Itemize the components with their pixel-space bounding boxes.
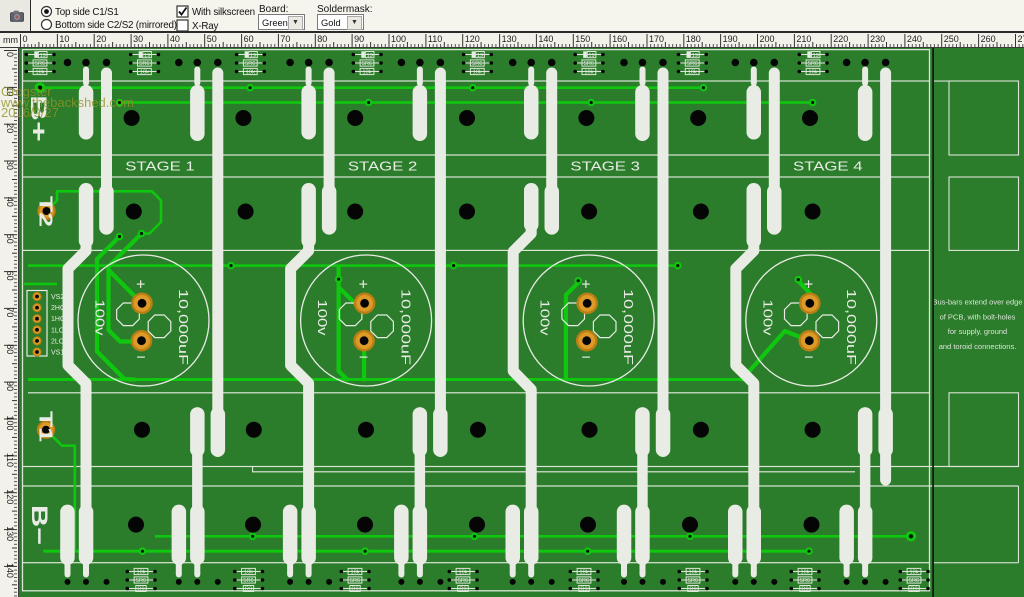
svg-text:60: 60 [5, 271, 15, 281]
svg-text:19: 19 [477, 53, 483, 59]
svg-text:−: − [582, 350, 591, 367]
svg-text:130: 130 [5, 526, 15, 541]
svg-text:100v: 100v [760, 300, 775, 337]
svg-text:Bottom side C2/S2 (mirrored): Bottom side C2/S2 (mirrored) [55, 20, 177, 31]
svg-text:Bus-bars extend over edge: Bus-bars extend over edge [932, 298, 1022, 307]
svg-text:X-Ray: X-Ray [192, 21, 219, 31]
svg-text:STAGE 3: STAGE 3 [570, 159, 640, 174]
svg-text:10k: 10k [688, 570, 697, 576]
svg-text:190: 190 [723, 34, 738, 44]
svg-text:STAGE 2: STAGE 2 [348, 159, 418, 174]
svg-text:−: − [804, 350, 813, 367]
svg-text:+: + [581, 277, 590, 294]
svg-text:−: − [359, 350, 368, 367]
svg-text:+: + [136, 277, 145, 294]
svg-text:0: 0 [23, 34, 28, 44]
svg-text:100: 100 [391, 34, 406, 44]
svg-text:5R6: 5R6 [808, 61, 818, 67]
svg-text:19: 19 [692, 53, 698, 59]
svg-text:80: 80 [5, 344, 15, 354]
svg-text:180: 180 [686, 34, 701, 44]
svg-text:R9: R9 [137, 587, 144, 593]
svg-text:50: 50 [5, 234, 15, 244]
svg-text:10,000uF: 10,000uF [844, 289, 859, 365]
svg-text:5R6: 5R6 [579, 578, 589, 584]
svg-text:70: 70 [5, 307, 15, 317]
svg-text:130: 130 [502, 34, 517, 44]
svg-text:100v: 100v [538, 300, 553, 337]
svg-text:140: 140 [538, 34, 553, 44]
svg-text:VS2: VS2 [51, 294, 64, 301]
svg-text:+: + [359, 277, 368, 294]
svg-text:5R6: 5R6 [139, 61, 149, 67]
svg-text:40: 40 [170, 34, 180, 44]
svg-text:19: 19 [144, 53, 150, 59]
svg-text:+: + [804, 277, 813, 294]
svg-text:of PCB, with bolt-holes: of PCB, with bolt-holes [940, 312, 1016, 321]
svg-text:100v: 100v [315, 300, 330, 337]
svg-text:5R6: 5R6 [584, 61, 594, 67]
svg-text:10k: 10k [584, 70, 593, 76]
svg-text:110: 110 [428, 34, 442, 44]
svg-text:1HO: 1HO [51, 316, 66, 323]
svg-text:1LO: 1LO [51, 327, 65, 334]
svg-text:5R6: 5R6 [35, 61, 45, 67]
svg-text:10k: 10k [473, 70, 482, 76]
svg-text:19: 19 [813, 53, 819, 59]
svg-text:19: 19 [367, 53, 373, 59]
svg-text:80: 80 [317, 34, 327, 44]
svg-text:90: 90 [5, 381, 15, 391]
svg-text:for supply, ground: for supply, ground [948, 327, 1007, 336]
svg-text:10k: 10k [688, 70, 697, 76]
svg-text:5R6: 5R6 [362, 61, 372, 67]
svg-text:5R6: 5R6 [688, 578, 698, 584]
svg-text:5R6: 5R6 [472, 61, 482, 67]
svg-text:10k: 10k [458, 570, 467, 576]
svg-text:70: 70 [280, 34, 290, 44]
svg-text:VS1: VS1 [51, 350, 64, 357]
svg-text:5R6: 5R6 [243, 578, 253, 584]
svg-text:270: 270 [1018, 34, 1024, 44]
svg-text:60: 60 [244, 34, 254, 44]
svg-text:90: 90 [354, 34, 364, 44]
svg-text:10k: 10k [800, 570, 809, 576]
svg-text:140: 140 [5, 563, 15, 578]
svg-text:110: 110 [5, 453, 15, 467]
svg-text:240: 240 [907, 34, 922, 44]
svg-text:10,000uF: 10,000uF [399, 289, 414, 365]
svg-text:210: 210 [796, 34, 811, 44]
svg-text:100: 100 [5, 415, 15, 430]
svg-text:5R6: 5R6 [687, 61, 697, 67]
svg-text:10k: 10k [140, 70, 149, 76]
svg-text:20: 20 [5, 123, 15, 133]
svg-text:−: − [136, 350, 145, 367]
svg-text:10k: 10k [808, 70, 817, 76]
svg-text:19: 19 [588, 53, 594, 59]
svg-text:R9: R9 [910, 587, 917, 593]
svg-text:19: 19 [40, 53, 46, 59]
svg-text:10: 10 [59, 34, 69, 44]
svg-text:2LO: 2LO [51, 338, 65, 345]
svg-text:150: 150 [575, 34, 590, 44]
svg-text:R9: R9 [459, 587, 466, 593]
svg-text:250: 250 [944, 34, 959, 44]
svg-text:STAGE 4: STAGE 4 [793, 159, 863, 174]
svg-text:30: 30 [133, 34, 143, 44]
svg-text:10k: 10k [362, 70, 371, 76]
svg-text:230: 230 [870, 34, 885, 44]
svg-text:5R6: 5R6 [350, 578, 360, 584]
svg-text:T2: T2 [36, 196, 56, 227]
svg-text:10k: 10k [246, 70, 255, 76]
svg-text:20: 20 [96, 34, 106, 44]
svg-text:T1: T1 [36, 411, 56, 442]
svg-text:0: 0 [5, 52, 15, 57]
svg-text:10,000uF: 10,000uF [621, 289, 636, 365]
svg-text:100v: 100v [93, 300, 108, 337]
svg-text:19: 19 [250, 53, 256, 59]
svg-text:40: 40 [5, 197, 15, 207]
svg-text:50: 50 [207, 34, 217, 44]
svg-text:10k: 10k [579, 570, 588, 576]
svg-text:5R6: 5R6 [245, 61, 255, 67]
svg-text:30: 30 [5, 160, 15, 170]
svg-text:Top side C1/S1: Top side C1/S1 [55, 7, 119, 18]
svg-text:and toroid connections.: and toroid connections. [939, 342, 1017, 351]
svg-text:5R6: 5R6 [909, 578, 919, 584]
svg-text:10k: 10k [136, 570, 145, 576]
svg-text:STAGE 1: STAGE 1 [125, 159, 195, 174]
svg-text:R9: R9 [351, 587, 358, 593]
svg-text:R9: R9 [801, 587, 808, 593]
svg-text:10k: 10k [244, 570, 253, 576]
svg-text:10k: 10k [909, 570, 918, 576]
svg-text:5R6: 5R6 [800, 578, 810, 584]
svg-text:5R6: 5R6 [136, 578, 146, 584]
svg-text:B−: B− [27, 505, 52, 545]
svg-text:2HO: 2HO [51, 305, 66, 312]
svg-text:R9: R9 [689, 587, 696, 593]
svg-text:200: 200 [760, 34, 775, 44]
svg-text:R9: R9 [580, 587, 587, 593]
svg-text:5R6: 5R6 [458, 578, 468, 584]
svg-text:260: 260 [981, 34, 996, 44]
svg-text:10,000uF: 10,000uF [176, 289, 191, 365]
svg-text:10k: 10k [350, 570, 359, 576]
svg-text:220: 220 [833, 34, 848, 44]
svg-text:With silkscreen: With silkscreen [192, 7, 255, 18]
svg-text:10k: 10k [35, 70, 44, 76]
svg-text:120: 120 [5, 489, 15, 504]
svg-text:120: 120 [465, 34, 480, 44]
svg-text:160: 160 [612, 34, 627, 44]
svg-text:R9: R9 [245, 587, 252, 593]
svg-text:170: 170 [649, 34, 664, 44]
